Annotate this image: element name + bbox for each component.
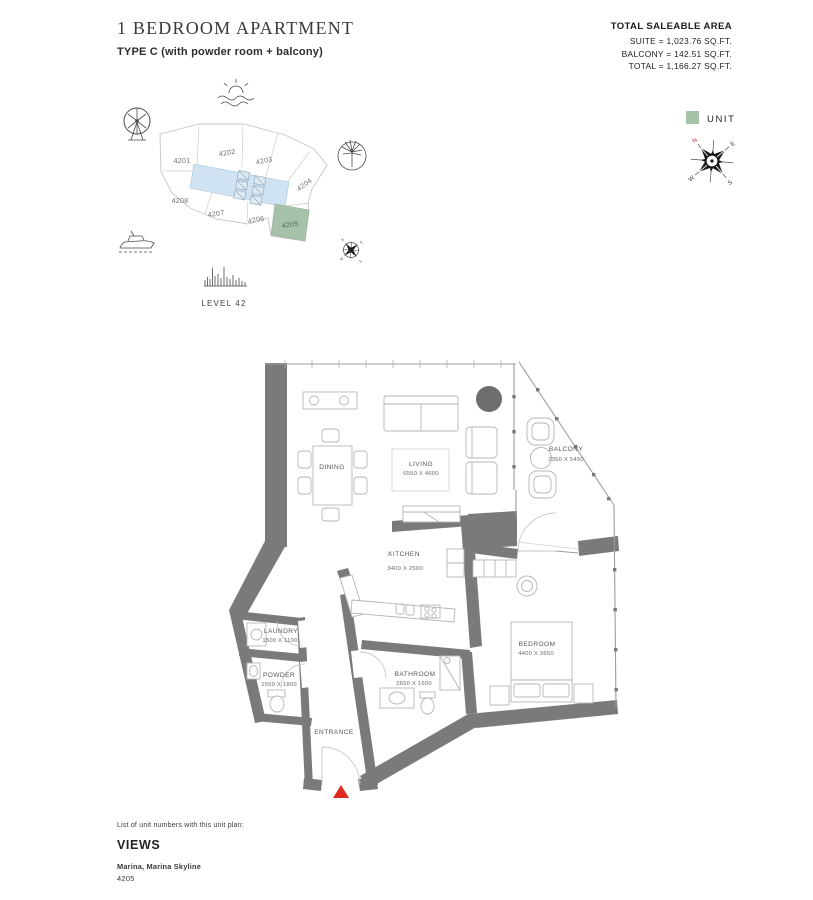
compass-s: S <box>727 180 734 187</box>
views-heading: VIEWS <box>117 838 244 852</box>
compass-rose: N E S W <box>671 120 755 205</box>
svg-text:S: S <box>358 259 363 264</box>
bedroom-dims: 4400 X 3650 <box>518 651 554 657</box>
bedroom-furniture <box>473 560 593 705</box>
key-plan: 4201 4202 4203 4204 4205 4206 4207 4208 … <box>119 79 373 308</box>
unit-label-4201: 4201 <box>174 158 191 165</box>
bathroom-label: BATHROOM <box>395 671 436 678</box>
unit-legend-swatch <box>686 111 699 124</box>
beach-icon <box>218 79 254 106</box>
legend: UNIT <box>686 111 736 125</box>
floor-plan-page: 1 BEDROOM APARTMENT TYPE C (with powder … <box>0 0 813 900</box>
dining-label: DINING <box>319 464 344 471</box>
structural-column <box>476 386 502 412</box>
key-plan-compass-icon: N E S W <box>330 229 373 272</box>
compass-n: N <box>692 137 699 144</box>
compass-e: E <box>730 141 737 148</box>
svg-text:N: N <box>340 237 345 242</box>
unit-list-label: List of unit numbers with this unit plan… <box>117 822 244 829</box>
kitchen-furniture <box>340 549 464 622</box>
living-label: LIVING <box>409 461 433 468</box>
svg-text:W: W <box>339 256 345 262</box>
kitchen-dims: 3400 X 2500 <box>387 566 423 572</box>
palm-tree-icon <box>338 140 366 170</box>
main-floor-plan: DINING LIVING 6550 X 4600 KITCHEN 3400 X… <box>229 360 619 798</box>
entrance-marker <box>333 785 349 798</box>
views-value: Marina, Marina Skyline <box>117 862 244 871</box>
entrance-label: ENTRANCE <box>314 729 354 736</box>
views-unit-number: 4205 <box>117 874 244 883</box>
key-plan-building: 4201 4202 4203 4204 4205 4206 4207 4208 <box>160 124 327 241</box>
footer: List of unit numbers with this unit plan… <box>117 822 244 883</box>
svg-text:E: E <box>359 240 364 245</box>
living-dims: 6550 X 4600 <box>403 471 439 477</box>
plan-graphics: 4201 4202 4203 4204 4205 4206 4207 4208 … <box>0 0 813 900</box>
living-furniture <box>384 386 502 522</box>
skyline-icon <box>204 267 247 286</box>
balcony-dims: 2350 X 5450 <box>548 457 584 463</box>
bathroom-dims: 2650 X 1600 <box>396 681 432 687</box>
powder-label: POWDER <box>263 672 295 679</box>
compass-w: W <box>688 175 696 183</box>
unit-label-4208: 4208 <box>172 198 189 205</box>
observation-wheel-icon <box>124 108 150 140</box>
level-label: LEVEL 42 <box>201 299 246 308</box>
kitchen-label: KITCHEN <box>388 551 420 558</box>
bedroom-label: BEDROOM <box>519 641 556 648</box>
balcony-label: BALCONY <box>549 446 584 453</box>
laundry-dims: 1500 X 1100 <box>262 638 298 644</box>
powder-dims: 1550 X 1800 <box>261 682 297 688</box>
yacht-icon <box>119 231 154 252</box>
unit-legend-label: UNIT <box>707 114 736 125</box>
laundry-label: LAUNDRY <box>264 628 298 635</box>
dining-furniture <box>298 392 367 521</box>
